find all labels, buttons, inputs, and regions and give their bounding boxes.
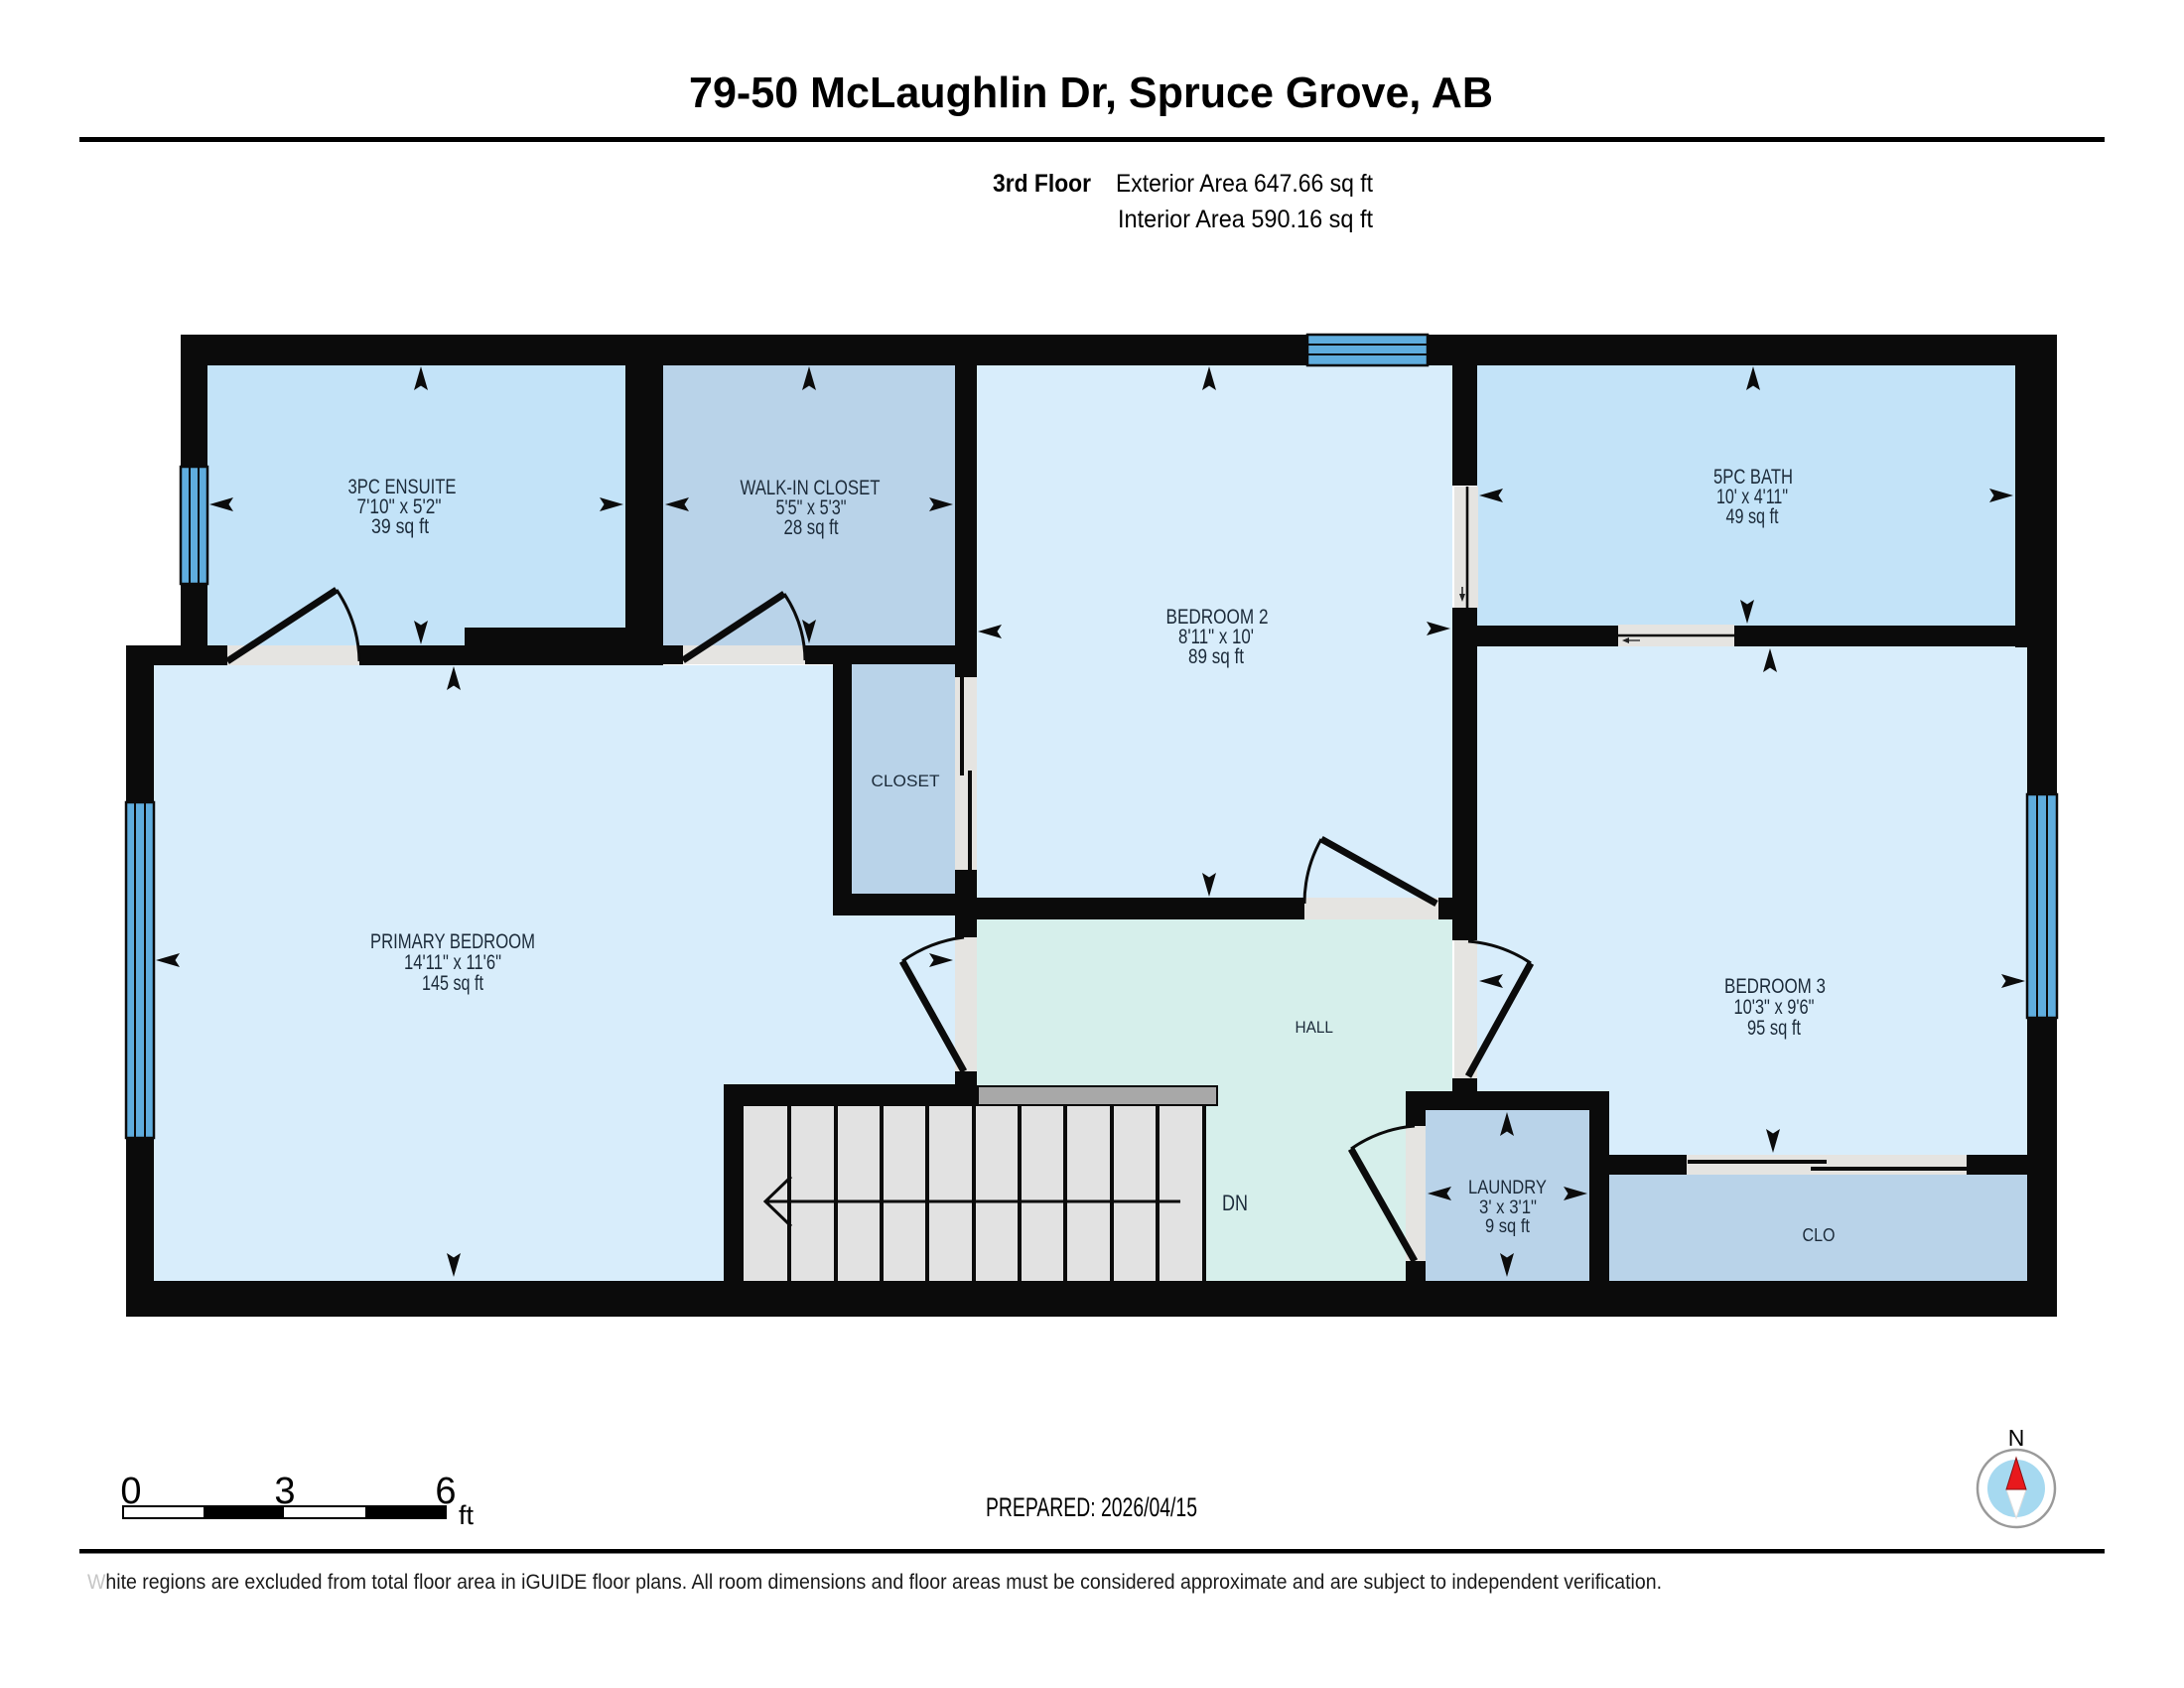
svg-text:6: 6: [435, 1471, 456, 1512]
svg-text:BEDROOM 3: BEDROOM 3: [1724, 975, 1826, 998]
svg-text:CLOSET: CLOSET: [872, 772, 940, 790]
svg-text:95 sq ft: 95 sq ft: [1747, 1017, 1801, 1040]
svg-text:PRIMARY BEDROOM: PRIMARY BEDROOM: [370, 930, 535, 953]
svg-text:DN: DN: [1222, 1191, 1248, 1215]
svg-text:49 sq ft: 49 sq ft: [1726, 505, 1779, 528]
svg-text:ft: ft: [459, 1500, 475, 1530]
svg-text:PREPARED: 2026/04/15: PREPARED: 2026/04/15: [986, 1492, 1197, 1522]
svg-text:10'3" x 9'6": 10'3" x 9'6": [1734, 996, 1815, 1019]
svg-text:HALL: HALL: [1296, 1018, 1334, 1037]
svg-text:N: N: [2008, 1425, 2025, 1451]
svg-text:Exterior Area 647.66 sq ft: Exterior Area 647.66 sq ft: [1116, 170, 1373, 198]
svg-text:28 sq ft: 28 sq ft: [784, 516, 839, 539]
svg-text:CLO: CLO: [1803, 1225, 1836, 1245]
svg-text:Interior Area 590.16 sq ft: Interior Area 590.16 sq ft: [1118, 206, 1373, 233]
svg-text:145 sq ft: 145 sq ft: [422, 972, 483, 995]
svg-text:3: 3: [274, 1471, 295, 1512]
svg-text:3' x 3'1": 3' x 3'1": [1479, 1197, 1537, 1218]
svg-text:39 sq ft: 39 sq ft: [371, 515, 429, 538]
svg-text:89 sq ft: 89 sq ft: [1188, 645, 1244, 668]
svg-text:9 sq ft: 9 sq ft: [1485, 1216, 1531, 1237]
svg-text:14'11" x 11'6": 14'11" x 11'6": [404, 951, 501, 974]
svg-text:0: 0: [120, 1471, 141, 1512]
svg-text:LAUNDRY: LAUNDRY: [1468, 1178, 1547, 1198]
svg-text:3rd Floor: 3rd Floor: [993, 170, 1091, 198]
svg-text:79-50 McLaughlin Dr, Spruce Gr: 79-50 McLaughlin Dr, Spruce Grove, AB: [689, 69, 1493, 117]
svg-text:White regions are excluded fro: White regions are excluded from total fl…: [87, 1571, 1662, 1594]
